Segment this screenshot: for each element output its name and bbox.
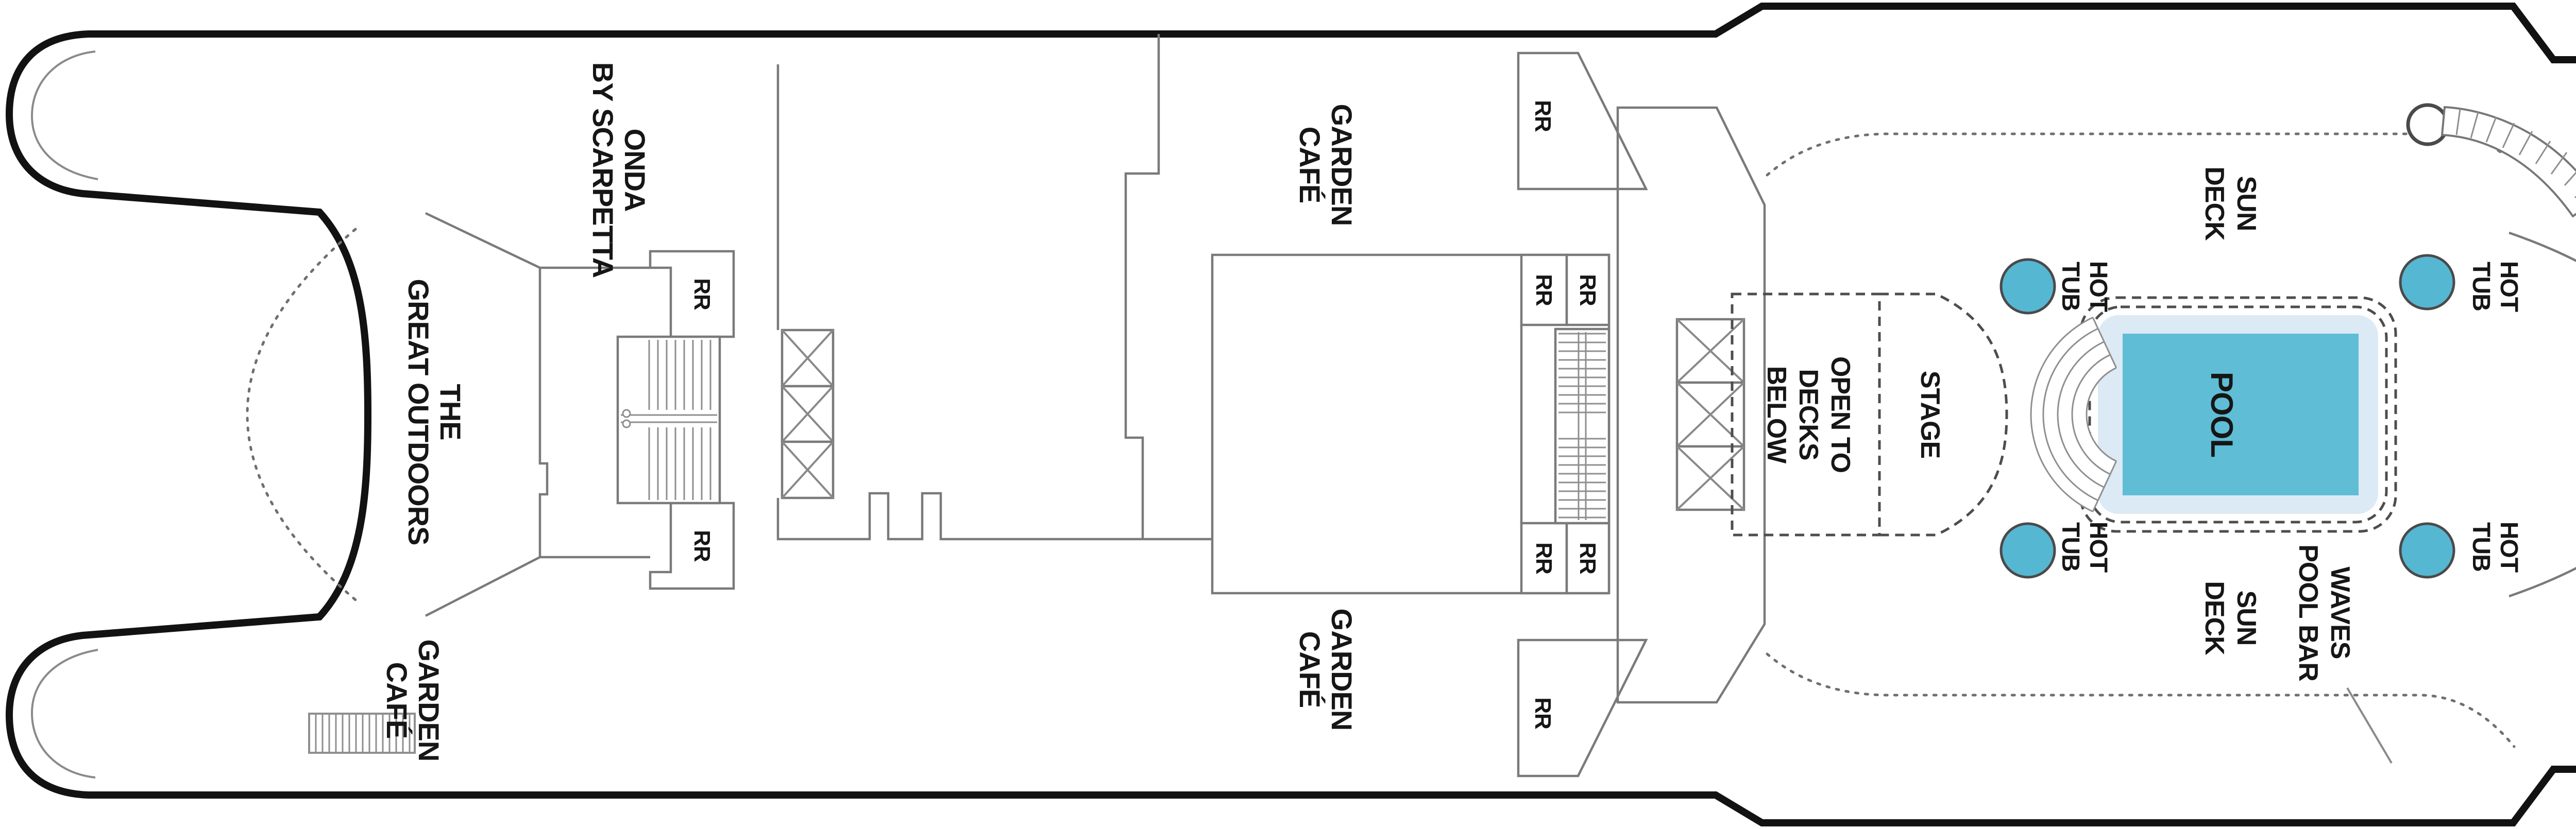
- deck-plan: ONDABY SCARPETTA THEGREAT OUTDOORS GARDE…: [0, 0, 2576, 829]
- rr-label: RR: [689, 530, 715, 562]
- hot-tub: [2400, 524, 2454, 577]
- stair-treads: [1558, 433, 1606, 520]
- pool-water: [2123, 334, 2359, 495]
- stair-treads: [648, 340, 717, 410]
- hot-tub: [2001, 260, 2055, 313]
- hot-tub-label: HOTTUB: [2057, 522, 2112, 573]
- slide-platform: [2408, 105, 2447, 144]
- rr-label: RR: [1531, 542, 1556, 574]
- rr-label: RR: [1530, 100, 1555, 132]
- great-outdoors-deck-edge: [247, 229, 355, 600]
- rr-label: RR: [1530, 697, 1555, 729]
- deck-plan-page: ONDABY SCARPETTA THEGREAT OUTDOORS GARDE…: [0, 0, 2576, 829]
- open-below-label: OPEN TODECKSBELOW: [1761, 356, 1855, 473]
- stair-newel: [623, 410, 630, 417]
- stair-treads: [648, 427, 717, 500]
- rr-label: RR: [1531, 274, 1556, 306]
- stair-newel: [623, 420, 630, 427]
- hot-tub-label: HOTTUB: [2467, 261, 2522, 312]
- rr-label: RR: [1575, 274, 1600, 306]
- rr-label: RR: [1575, 542, 1600, 574]
- hot-tub-label: HOTTUB: [2467, 522, 2522, 573]
- hot-tub: [2001, 524, 2055, 577]
- stage-label: STAGE: [1915, 371, 1945, 458]
- pool-label: POOL: [2205, 372, 2239, 457]
- stair-treads: [1558, 332, 1606, 420]
- hot-tub: [2400, 255, 2454, 309]
- hot-tub-label: HOTTUB: [2057, 261, 2112, 312]
- rr-label: RR: [689, 278, 715, 310]
